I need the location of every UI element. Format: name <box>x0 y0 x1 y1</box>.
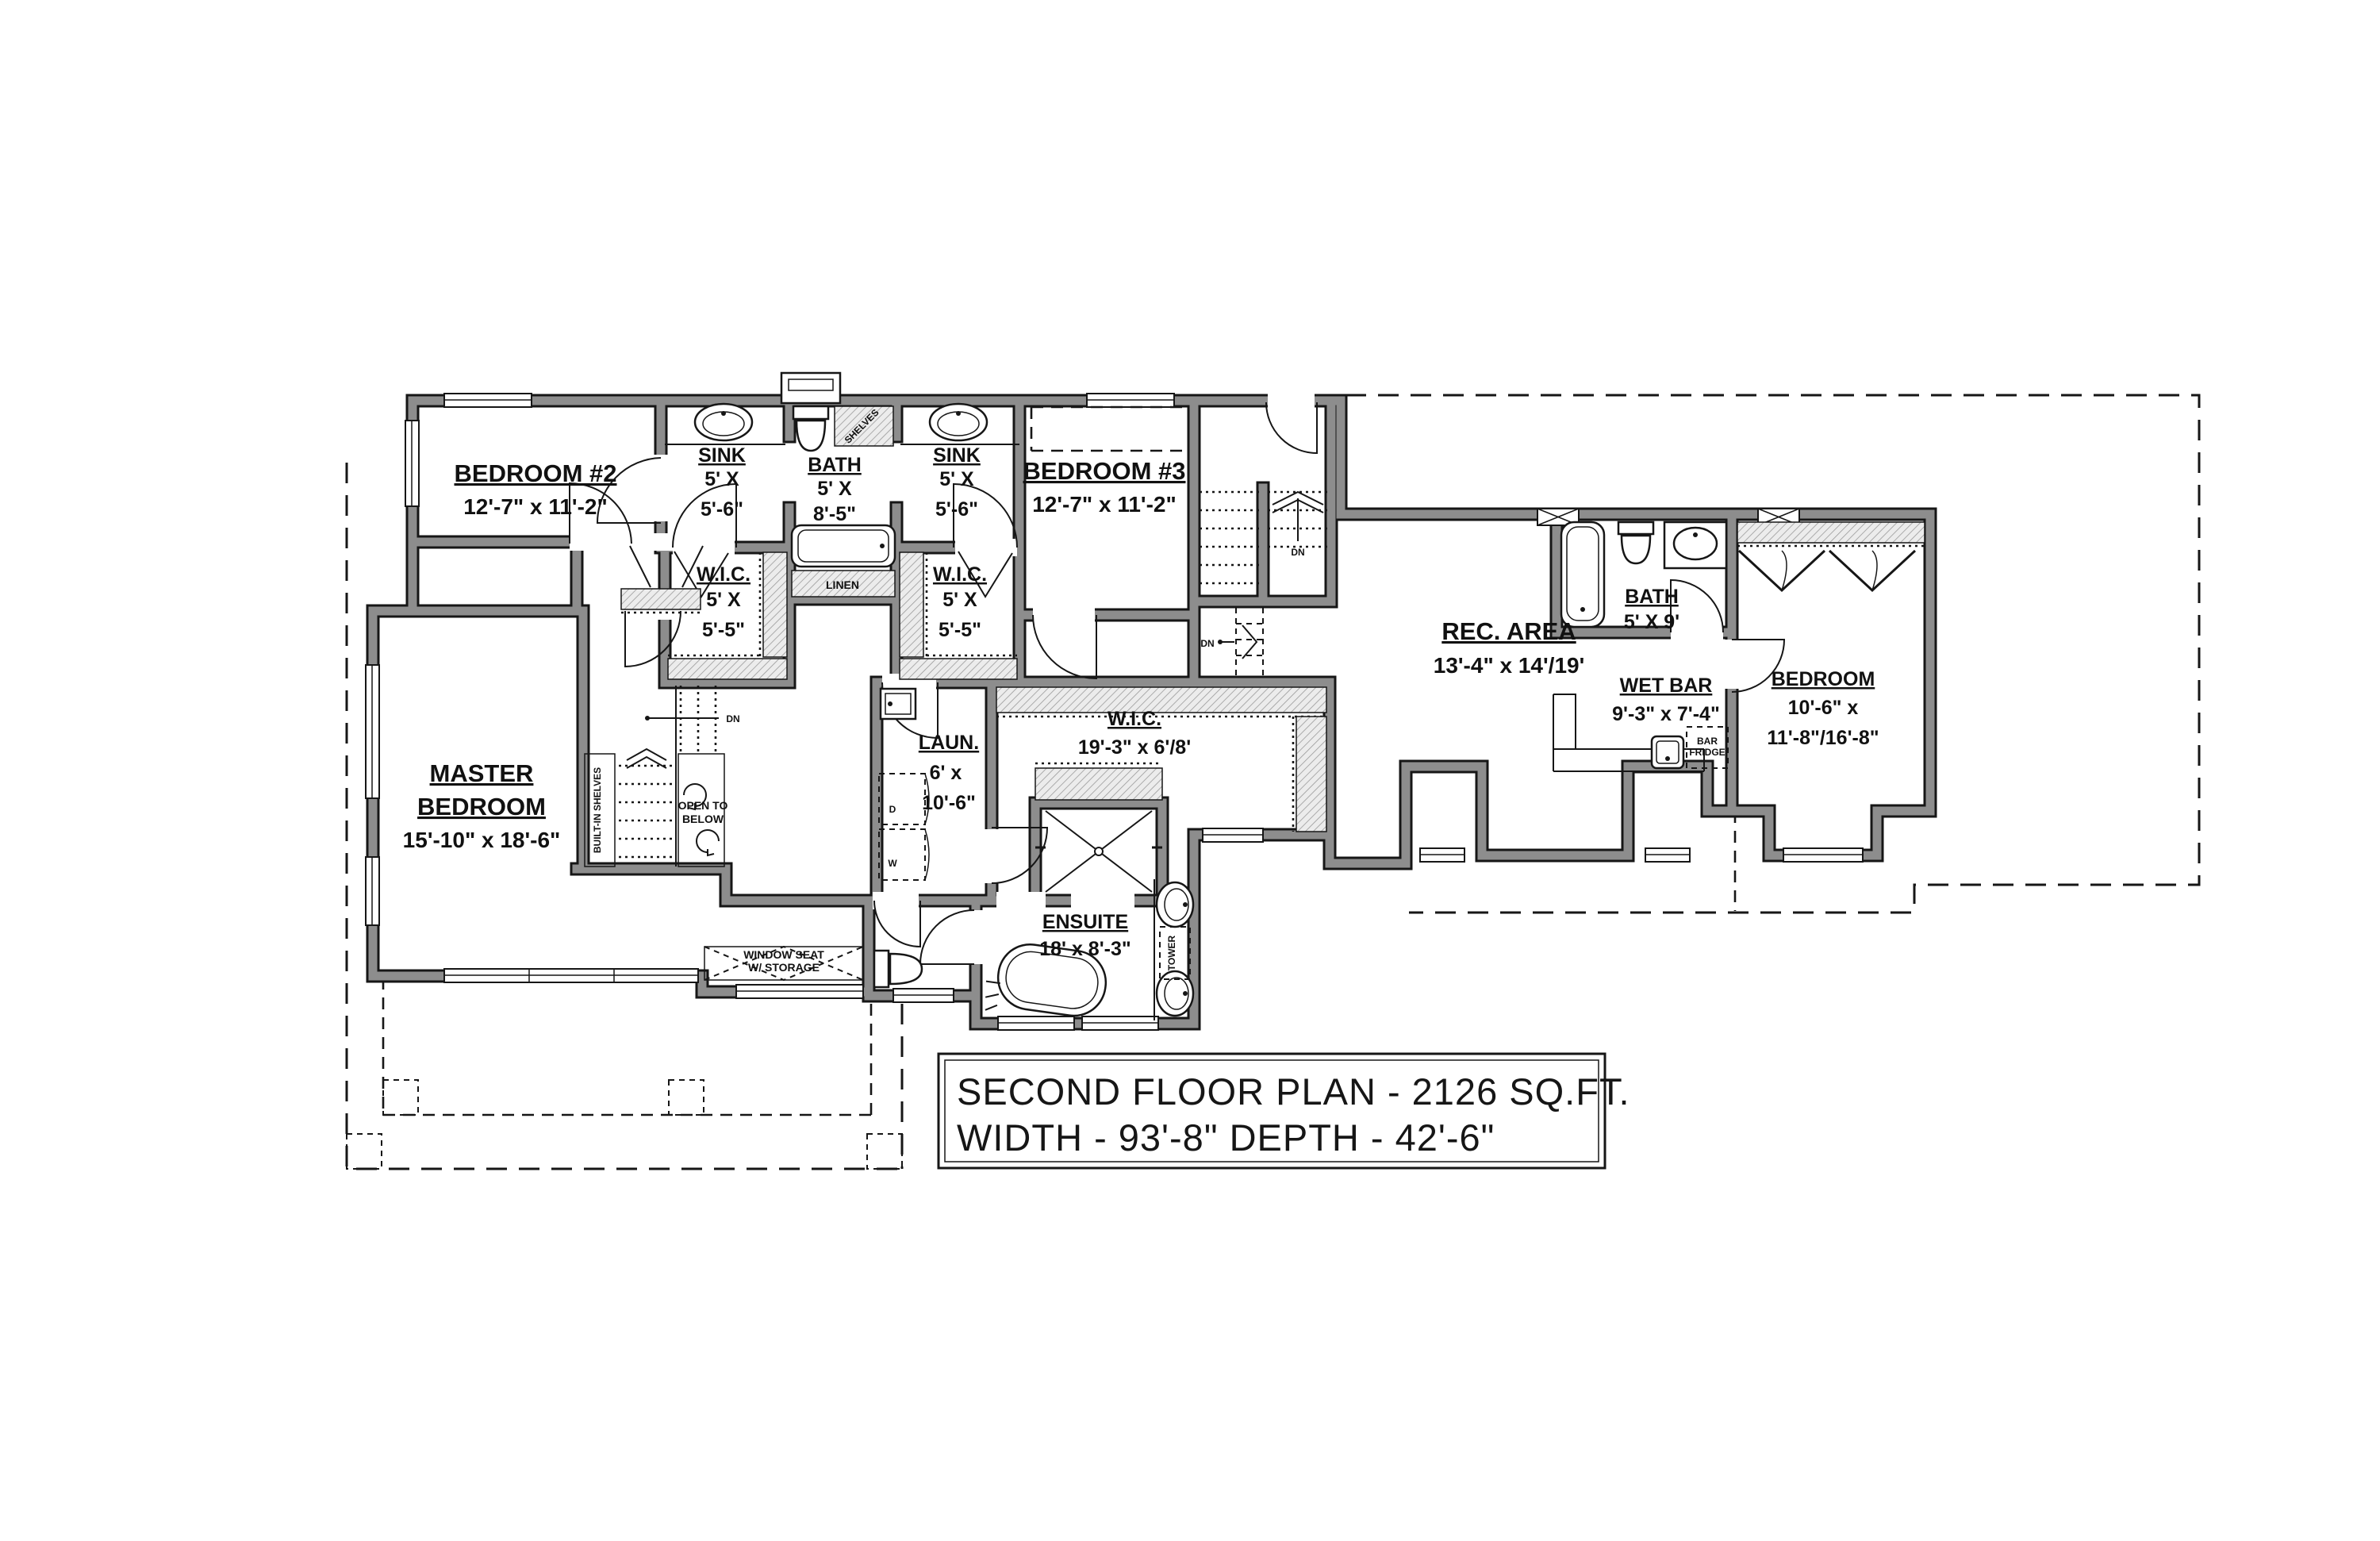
label-laundry-name: LAUN. <box>919 732 979 754</box>
title-block: SECOND FLOOR PLAN - 2126 SQ.FT. WIDTH - … <box>939 1054 1630 1168</box>
laundry-fixtures <box>879 689 929 880</box>
washer <box>879 829 929 880</box>
label-window-seat2: W/ STORAGE <box>748 961 820 974</box>
laundry-sink <box>881 689 916 719</box>
label-tower: TOWER <box>1166 935 1177 970</box>
title-line2: WIDTH - 93'-8" DEPTH - 42'-6" <box>957 1116 1495 1159</box>
window <box>1645 848 1690 862</box>
vanity-sink <box>1157 971 1193 1016</box>
window <box>893 989 954 1002</box>
label-dn-3: DN <box>726 713 739 724</box>
label-built-in-shelves: BUILT-IN SHELVES <box>592 767 603 853</box>
window <box>366 665 379 798</box>
window <box>736 985 863 998</box>
label-open-to-below2: BELOW <box>682 813 724 825</box>
dormer <box>781 373 840 403</box>
label-master-name2: BEDROOM <box>417 793 546 820</box>
label-bar-fridge1: BAR <box>1697 736 1718 747</box>
label-washer: W <box>888 858 897 869</box>
floor-plan-drawing: SECOND FLOOR PLAN - 2126 SQ.FT. WIDTH - … <box>0 0 2380 1541</box>
title-line1: SECOND FLOOR PLAN - 2126 SQ.FT. <box>957 1070 1630 1113</box>
label-bedroom2-dims: 12'-7" x 11'-2" <box>463 494 608 519</box>
label-ensuite-name: ENSUITE <box>1042 911 1128 933</box>
label-bedroom-right-name: BEDROOM <box>1772 668 1875 690</box>
window <box>1783 848 1863 862</box>
floor-plan-page: SECOND FLOOR PLAN - 2126 SQ.FT. WIDTH - … <box>0 0 2380 1541</box>
window <box>998 1016 1074 1030</box>
label-rec-area-name: REC. AREA <box>1441 617 1576 645</box>
label-sink-left-d1: 5' X <box>704 468 739 490</box>
label-master-name1: MASTER <box>430 759 534 787</box>
shower <box>1035 811 1162 892</box>
label-dn-2: DN <box>1200 638 1214 649</box>
label-laundry-d2: 10'-6" <box>922 792 976 814</box>
label-dn-1: DN <box>1291 547 1304 558</box>
label-dryer: D <box>889 804 896 815</box>
bathtub <box>792 525 895 567</box>
label-master-dims: 15'-10" x 18'-6" <box>403 828 561 852</box>
wc-toilet <box>874 951 922 987</box>
label-bedroom2-name: BEDROOM #2 <box>455 459 617 487</box>
label-wet-bar-name: WET BAR <box>1620 674 1713 697</box>
label-wic-left-d1: 5' X <box>706 589 741 611</box>
label-bar-fridge2: FRIDGE <box>1689 747 1725 758</box>
label-bath-top-d2: 8'-5" <box>813 503 856 525</box>
label-sink-right-name: SINK <box>933 444 981 467</box>
label-sink-left-name: SINK <box>698 444 746 467</box>
vanity-sink <box>1157 882 1193 927</box>
label-bath-right-dims: 5' X 9' <box>1624 611 1679 633</box>
label-bedroom-right-d2: 11'-8"/16'-8" <box>1767 727 1879 749</box>
label-wic-right-d2: 5'-5" <box>939 619 981 641</box>
sink-basin <box>930 404 987 440</box>
bedroom3-ceiling-dash <box>1031 407 1188 451</box>
label-bath-top-d1: 5' X <box>817 478 852 500</box>
label-bedroom3-name: BEDROOM #3 <box>1023 457 1186 485</box>
label-wic-master-dims: 19'-3" x 6'/8' <box>1078 736 1191 759</box>
label-open-to-below1: OPEN TO <box>678 799 728 812</box>
stairs-central <box>585 686 724 867</box>
label-wic-left-d2: 5'-5" <box>702 619 745 641</box>
label-window-seat1: WINDOW SEAT <box>743 948 824 961</box>
label-sink-right-d1: 5' X <box>939 468 974 490</box>
label-sink-right-d2: 5'-6" <box>935 498 978 521</box>
bathtub <box>1561 522 1604 627</box>
sink-basin <box>695 404 752 440</box>
label-wet-bar-dims: 9'-3" x 7'-4" <box>1612 703 1720 725</box>
window <box>444 394 532 407</box>
label-bath-top-name: BATH <box>808 454 862 476</box>
label-rec-area-dims: 13'-4" x 14'/19' <box>1434 653 1585 678</box>
label-bath-right-name: BATH <box>1625 586 1679 608</box>
window <box>1420 848 1464 862</box>
label-linen: LINEN <box>826 578 859 591</box>
label-wic-left-name: W.I.C. <box>697 563 750 586</box>
label-bedroom3-dims: 12'-7" x 11'-2" <box>1032 492 1177 517</box>
toilet <box>1618 522 1653 563</box>
label-sink-left-d2: 5'-6" <box>701 498 743 521</box>
label-bedroom-right-d1: 10'-6" x <box>1788 697 1859 719</box>
window <box>366 857 379 925</box>
window <box>444 969 698 982</box>
sink-counter <box>1664 522 1726 568</box>
label-ensuite-dims: 18' x 8'-3" <box>1039 938 1130 960</box>
label-wic-master-name: W.I.C. <box>1107 708 1161 730</box>
window <box>1203 828 1263 842</box>
window <box>1087 394 1174 407</box>
window <box>1082 1016 1158 1030</box>
label-wic-right-name: W.I.C. <box>933 563 987 586</box>
label-wic-right-d1: 5' X <box>942 589 977 611</box>
bar-sink <box>1652 736 1683 768</box>
toilet <box>793 406 828 451</box>
label-laundry-d1: 6' x <box>930 762 962 784</box>
window <box>405 421 419 506</box>
